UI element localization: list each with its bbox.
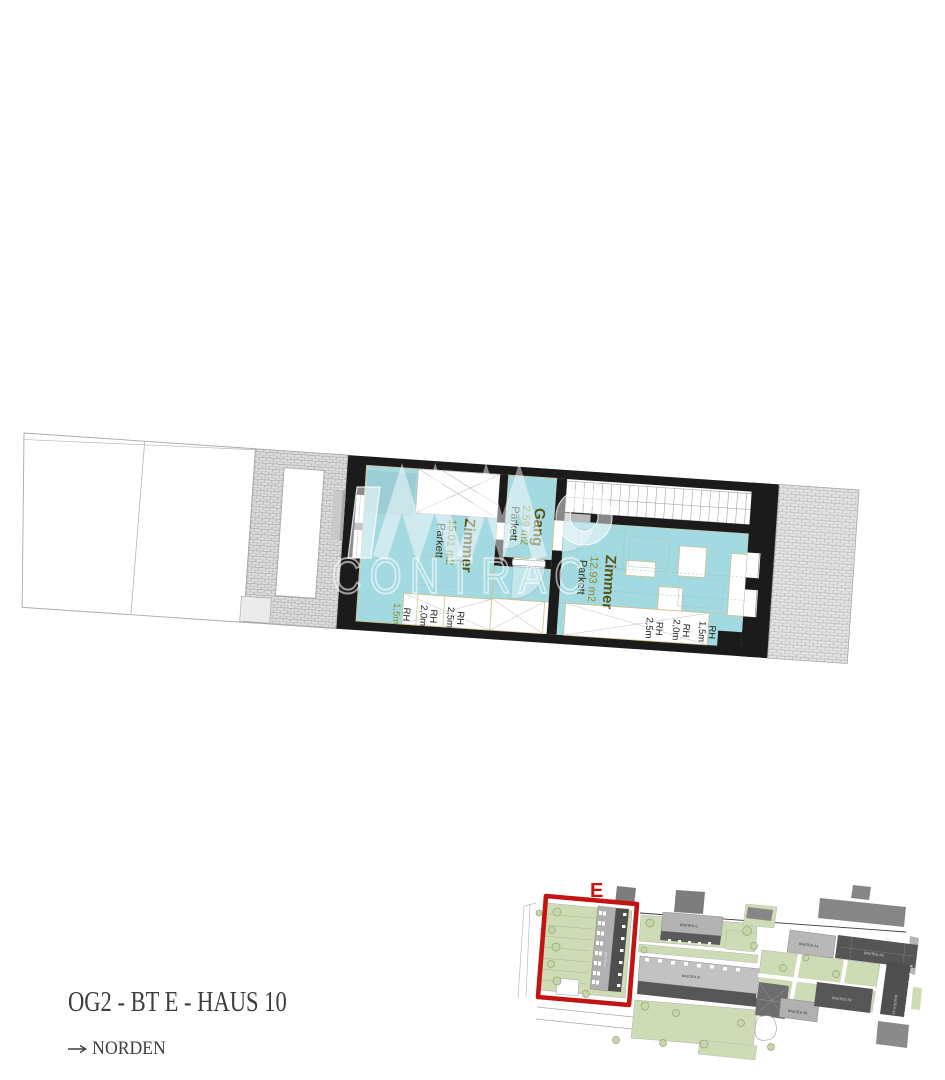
svg-text:1,5m: 1,5m bbox=[390, 603, 402, 625]
svg-text:E: E bbox=[590, 880, 603, 902]
svg-text:2,0m: 2,0m bbox=[669, 619, 681, 641]
svg-text:CONTRAC: CONTRAC bbox=[332, 548, 592, 604]
svg-text:1,5m: 1,5m bbox=[695, 621, 707, 643]
svg-text:2,0m: 2,0m bbox=[417, 605, 429, 627]
svg-text:2,5m: 2,5m bbox=[444, 606, 456, 628]
svg-text:2,5m: 2,5m bbox=[642, 617, 654, 639]
